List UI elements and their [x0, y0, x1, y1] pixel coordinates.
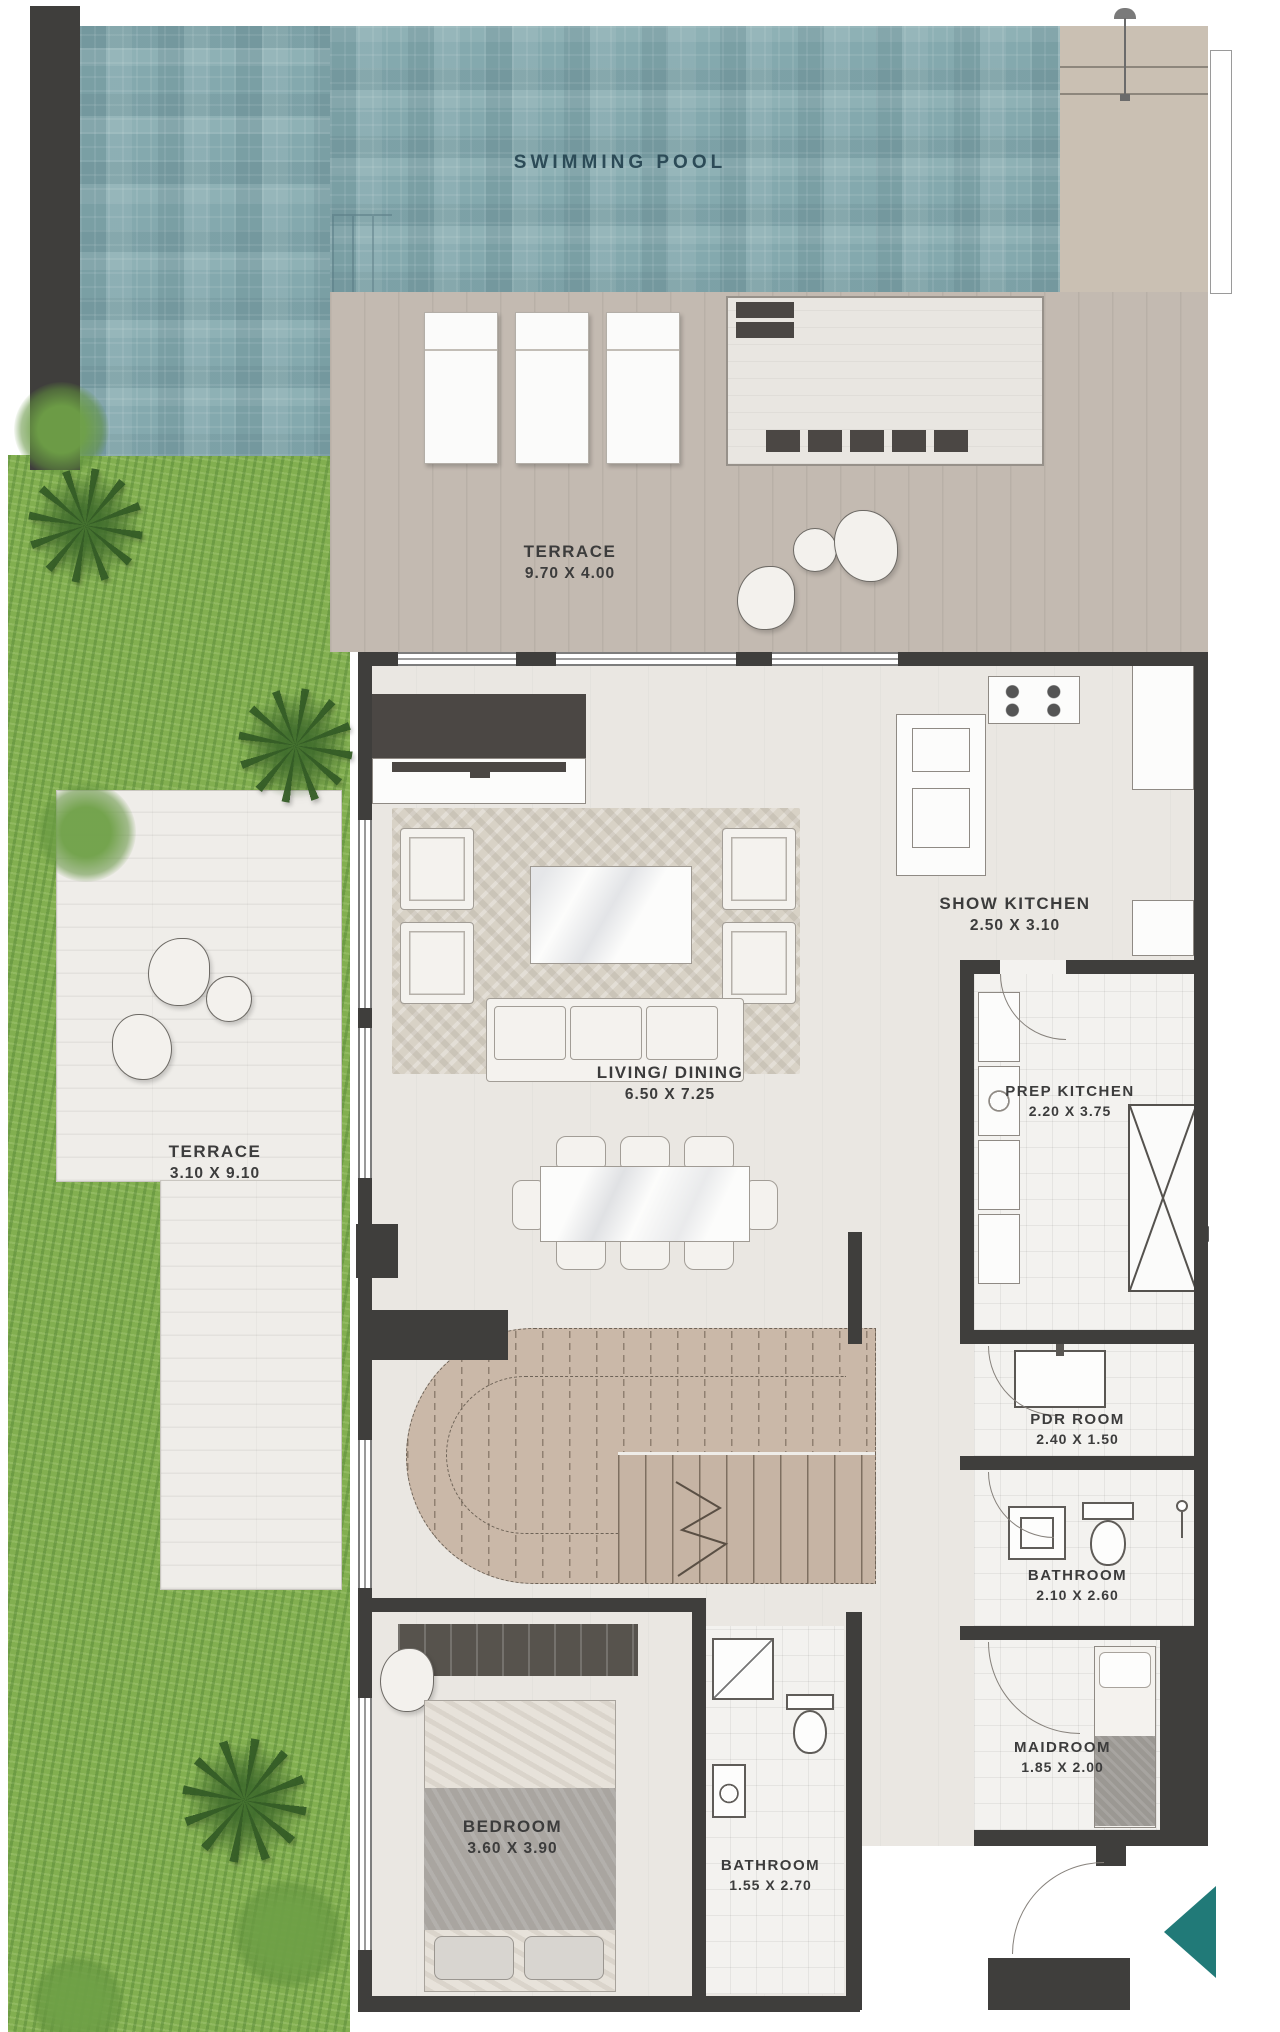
- armchair: [722, 828, 796, 910]
- dining-chair: [512, 1180, 542, 1230]
- cooktop: [988, 676, 1080, 724]
- prep-counter: [978, 1140, 1020, 1210]
- tv-stand: [470, 772, 490, 778]
- tv: [392, 762, 566, 772]
- pillow: [1099, 1652, 1151, 1688]
- bush: [14, 382, 109, 477]
- entry-arrow-icon: [1164, 1886, 1216, 1978]
- pouf: [737, 566, 795, 630]
- bush: [232, 1878, 344, 1990]
- sun-lounger: [424, 312, 498, 464]
- window: [556, 652, 736, 666]
- window: [358, 1440, 372, 1588]
- dining-table: [540, 1166, 750, 1242]
- section-marker-icon: [1108, 6, 1142, 102]
- shaft: [1128, 1104, 1198, 1292]
- wall-bottom: [358, 1996, 860, 2012]
- bench-cushion: [736, 302, 794, 318]
- toilet-bowl: [793, 1710, 827, 1754]
- bench-cushion: [736, 322, 794, 338]
- stair-break-icon: [668, 1478, 748, 1580]
- dining-chair: [556, 1136, 606, 1168]
- swimming-pool-main: [330, 26, 1060, 294]
- sofa-cushion: [646, 1006, 718, 1060]
- armchair: [722, 922, 796, 1004]
- pouf: [206, 976, 252, 1022]
- bed-blanket: [424, 1788, 616, 1930]
- sofa-cushion: [494, 1006, 566, 1060]
- palm-tree: [28, 468, 143, 583]
- wall-pier: [356, 1224, 398, 1278]
- stool: [892, 430, 926, 452]
- wall-right: [1194, 652, 1208, 1846]
- wall-maid-bottom: [974, 1830, 1208, 1846]
- prep-sink: [978, 1066, 1020, 1136]
- stool: [766, 430, 800, 452]
- appliance: [1132, 900, 1194, 956]
- wall-pdr-bath: [960, 1456, 1208, 1470]
- bush: [36, 782, 136, 882]
- tv-feature-wall: [372, 694, 586, 758]
- stool: [850, 430, 884, 452]
- terrace-side-deck-lower: [160, 1180, 342, 1590]
- stool: [808, 430, 842, 452]
- pouf: [793, 528, 837, 572]
- wall-prep-top: [960, 960, 1208, 974]
- wall-bed-bath: [692, 1612, 706, 1996]
- armchair: [400, 922, 474, 1004]
- wall-prep-left: [960, 960, 974, 1340]
- dining-chair: [684, 1136, 734, 1168]
- toilet-bowl: [1090, 1520, 1126, 1566]
- wall-bedroom-top: [358, 1598, 706, 1612]
- pouf: [112, 1014, 172, 1080]
- prep-counter: [978, 1214, 1020, 1284]
- pillow: [524, 1936, 604, 1980]
- pouf: [148, 938, 210, 1006]
- shower: [712, 1638, 774, 1700]
- wall-bath-entry: [846, 1612, 862, 2010]
- blanket: [1095, 1736, 1155, 1826]
- wardrobe: [398, 1624, 638, 1676]
- pillow: [434, 1936, 514, 1980]
- window: [398, 652, 516, 666]
- swimming-pool-left: [80, 26, 332, 456]
- dining-chair: [556, 1238, 606, 1270]
- palm-tree: [238, 688, 353, 803]
- dining-chair: [684, 1238, 734, 1270]
- door-opening: [1000, 960, 1066, 974]
- sun-lounger: [606, 312, 680, 464]
- armchair: [400, 828, 474, 910]
- window: [358, 1028, 372, 1178]
- toilet-tank: [786, 1694, 834, 1710]
- wall-stair-stub: [358, 1310, 508, 1360]
- kitchen-sink: [912, 728, 970, 772]
- dining-chair: [620, 1136, 670, 1168]
- window: [772, 652, 898, 666]
- wall-bath-maid: [960, 1626, 1208, 1640]
- parapet: [1210, 50, 1232, 294]
- palm-tree: [182, 1738, 307, 1863]
- sun-lounger: [515, 312, 589, 464]
- floor-plan: SWIMMING POOL TERRACE 9.70 X 4.00 LIVING…: [0, 0, 1280, 2032]
- kitchen-cabinet: [912, 788, 970, 848]
- tap-icon: [1176, 1500, 1188, 1512]
- tap-line: [1181, 1512, 1183, 1538]
- dining-chair: [748, 1180, 778, 1230]
- dining-chair: [620, 1238, 670, 1270]
- window: [358, 1698, 372, 1950]
- sofa-cushion: [570, 1006, 642, 1060]
- pool-steps: [332, 214, 392, 292]
- wall-corridor: [848, 1232, 862, 1344]
- toilet-tank: [1082, 1502, 1134, 1520]
- shaft-x-icon: [1130, 1106, 1196, 1290]
- tall-cabinet: [1132, 658, 1194, 790]
- window: [358, 820, 372, 1008]
- coffee-table: [530, 866, 692, 964]
- wall-pdr-top: [960, 1330, 1208, 1344]
- stool: [934, 430, 968, 452]
- washbasin: [712, 1764, 746, 1818]
- wall-entry-corner: [988, 1958, 1130, 2010]
- wall-maid-right: [1160, 1640, 1194, 1832]
